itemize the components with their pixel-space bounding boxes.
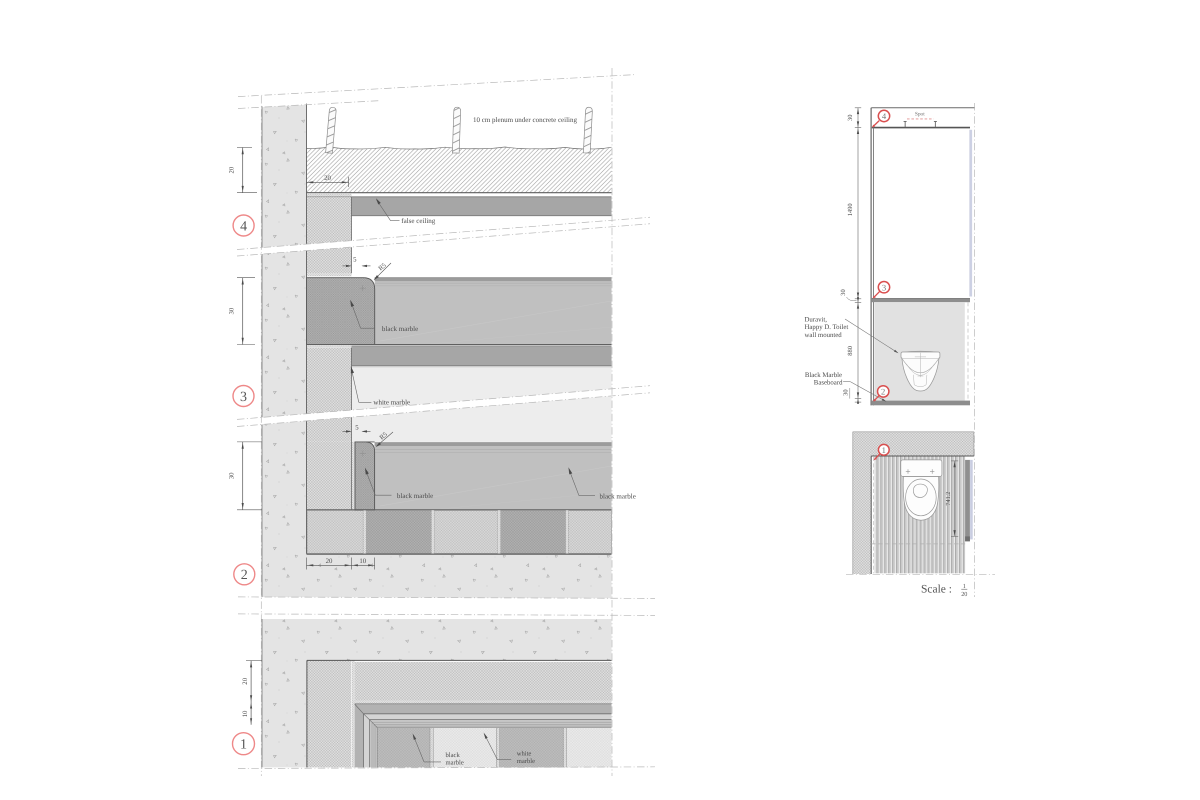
svg-text:2: 2	[241, 568, 248, 583]
svg-text:30: 30	[840, 289, 847, 295]
svg-text:Scale :: Scale :	[921, 584, 952, 596]
svg-text:white: white	[517, 750, 532, 757]
svg-text:Duravit,: Duravit,	[805, 317, 828, 324]
svg-text:Happy D. Toilet: Happy D. Toilet	[805, 324, 849, 331]
svg-text:black: black	[446, 752, 461, 759]
svg-text:20: 20	[242, 677, 249, 684]
svg-text:20: 20	[229, 166, 236, 173]
svg-text:4: 4	[240, 219, 247, 234]
svg-text:30: 30	[229, 307, 236, 314]
svg-text:black marble: black marble	[600, 493, 636, 501]
svg-text:30: 30	[229, 472, 236, 479]
svg-text:4: 4	[882, 111, 887, 121]
svg-text:5: 5	[355, 425, 359, 432]
svg-text:5: 5	[353, 256, 357, 263]
svg-text:880: 880	[847, 346, 854, 356]
svg-text:black marble: black marble	[397, 492, 433, 500]
svg-text:false ceiling: false ceiling	[401, 217, 436, 225]
svg-text:20: 20	[324, 175, 331, 182]
svg-text:black marble: black marble	[382, 325, 418, 333]
svg-text:3: 3	[240, 390, 247, 405]
svg-text:Black Marble: Black Marble	[805, 372, 842, 379]
svg-text:1: 1	[240, 738, 247, 753]
svg-text:30: 30	[843, 389, 850, 395]
svg-text:marble: marble	[446, 759, 464, 766]
svg-text:white marble: white marble	[373, 399, 410, 407]
svg-text:marble: marble	[517, 758, 535, 765]
svg-text:1: 1	[963, 583, 966, 590]
svg-text:wall mounted: wall mounted	[805, 332, 843, 339]
svg-text:741.2: 741.2	[945, 492, 952, 506]
svg-text:20: 20	[961, 591, 967, 598]
svg-text:3: 3	[882, 282, 886, 292]
svg-text:Baseboard: Baseboard	[814, 379, 843, 386]
svg-text:1: 1	[882, 445, 886, 455]
svg-text:Spot: Spot	[915, 111, 925, 117]
svg-text:20: 20	[326, 558, 333, 565]
svg-text:30: 30	[847, 115, 854, 121]
svg-text:10 cm plenum under concrete ce: 10 cm plenum under concrete ceiling	[473, 116, 577, 124]
svg-text:10: 10	[359, 558, 366, 565]
svg-text:2: 2	[881, 387, 885, 397]
svg-text:10: 10	[242, 710, 249, 717]
svg-text:1490: 1490	[847, 203, 854, 216]
